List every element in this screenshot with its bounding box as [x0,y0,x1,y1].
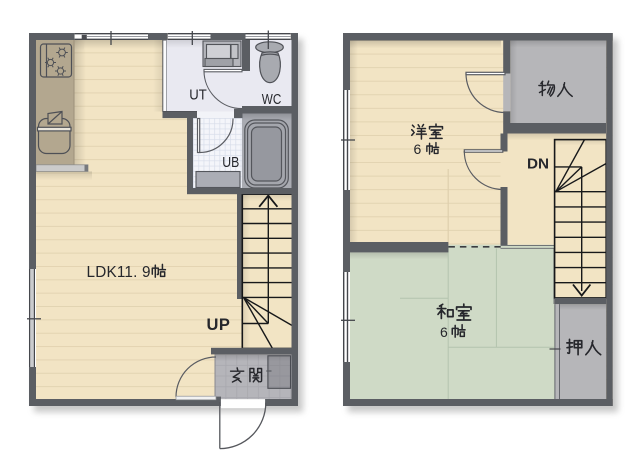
svg-text:UT: UT [189,87,207,104]
svg-text:WC: WC [262,91,282,108]
svg-text:UP: UP [207,316,231,334]
svg-text:UB: UB [222,154,239,171]
svg-text:DN: DN [527,156,549,173]
svg-text:6: 6 [414,141,422,157]
svg-text:LDK11. 9: LDK11. 9 [87,264,151,281]
svg-text:6: 6 [440,324,448,340]
